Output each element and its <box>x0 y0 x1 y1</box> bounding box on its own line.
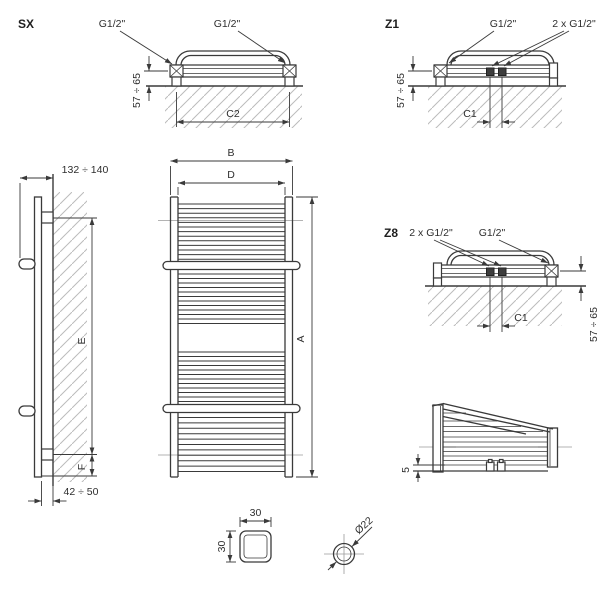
valve-right <box>545 265 558 277</box>
technical-drawing-page: SX G1/2" G1/2" <box>0 0 616 616</box>
dim-e-text: E <box>76 337 88 344</box>
dim-wall-distance: 57 ÷ 65 <box>395 56 432 108</box>
dim-diameter-text: Ø22 <box>353 515 376 537</box>
dim-a: A <box>295 197 318 477</box>
leader-left <box>120 31 172 64</box>
wall-foot-right <box>547 277 556 286</box>
dim-square-width: 30 <box>240 507 271 527</box>
drawing-svg: SX G1/2" G1/2" <box>0 0 616 616</box>
dim-wall-distance-text: 57 ÷ 65 <box>395 73 407 108</box>
view-front: B D A <box>158 147 318 477</box>
square-tube-inner <box>244 535 267 558</box>
valve-right <box>283 65 296 77</box>
wall-hatch <box>53 192 87 482</box>
dim-square-width-text: 30 <box>250 507 262 519</box>
dim-offset-5-text: 5 <box>400 467 412 473</box>
port-center-label: 2 x G1/2" <box>552 18 596 30</box>
bow-edge-1 <box>443 404 553 430</box>
detail-round-profile: Ø22 <box>324 515 375 574</box>
view-side: 132 ÷ 140 E F 42 ÷ 50 <box>19 164 108 506</box>
end-cap-left <box>434 263 442 278</box>
wall-foot-left <box>436 77 445 86</box>
hanger-bar <box>163 262 300 270</box>
detail-square-profile: 30 30 <box>216 507 271 562</box>
view-bottom-perspective: 5 <box>400 404 572 483</box>
collector-right <box>285 197 293 477</box>
valve-left <box>434 65 447 77</box>
leader-center-2 <box>440 240 501 266</box>
view-z8-top: Z8 2 x G1/2" G1/2" 57 ÷ 65 <box>384 226 600 342</box>
center-port-2 <box>499 68 507 76</box>
valve-left <box>170 65 183 77</box>
dim-d-text: D <box>227 169 235 181</box>
dim-f-text: F <box>76 464 88 470</box>
dim-wall-gap: 42 ÷ 50 <box>28 481 99 506</box>
port-left-label: G1/2" <box>99 18 126 30</box>
wall-foot-right <box>285 77 294 86</box>
hanger-bar <box>163 405 300 413</box>
dim-square-height-text: 30 <box>216 541 228 553</box>
hanger-bow-outer <box>176 51 290 65</box>
hanger-bow-inner <box>451 55 549 65</box>
dim-c2-text: C2 <box>226 108 240 120</box>
view-sx-label: SX <box>18 17 34 31</box>
wall-hatch <box>428 286 562 326</box>
dim-wall-gap-text: 42 ÷ 50 <box>64 486 99 498</box>
collector-right <box>548 428 558 467</box>
front-rungs <box>178 204 285 472</box>
view-sx-top: SX G1/2" G1/2" <box>18 17 303 128</box>
hanger-stub-top <box>19 259 35 269</box>
bracket-bottom <box>42 449 54 460</box>
bottom-rungs <box>443 413 548 465</box>
dim-a-text: A <box>295 335 307 342</box>
dim-wall-distance-text: 57 ÷ 65 <box>588 307 600 342</box>
port-side-label: G1/2" <box>490 18 517 30</box>
view-z8-label: Z8 <box>384 226 398 240</box>
panel-profile <box>35 197 42 477</box>
wall-foot-right <box>550 78 558 86</box>
dim-depth-total-text: 132 ÷ 140 <box>62 164 109 176</box>
center-port-1 <box>487 68 495 76</box>
dim-wall-distance-text: 57 ÷ 65 <box>131 73 143 108</box>
end-cap-right <box>550 63 558 78</box>
dim-c1-text: C1 <box>514 312 528 324</box>
collector-left <box>432 404 444 473</box>
dim-d: D <box>178 169 285 195</box>
wall-hatch <box>428 86 562 128</box>
dim-b-text: B <box>227 147 234 159</box>
leader-center-2 <box>504 31 569 66</box>
view-z1-label: Z1 <box>385 17 399 31</box>
dim-wall-distance: 57 ÷ 65 <box>560 256 600 342</box>
wall-foot-left <box>434 278 442 286</box>
front-hanger-bars <box>163 262 300 413</box>
port-center-label: 2 x G1/2" <box>409 227 453 239</box>
wall-foot-left <box>172 77 181 86</box>
collector-left <box>171 197 179 477</box>
leader-right <box>238 31 285 63</box>
view-z1-top: Z1 G1/2" 2 x G1/2" 57 ÷ 65 <box>385 17 596 128</box>
dim-square-height: 30 <box>216 531 236 562</box>
center-port-2 <box>499 268 507 276</box>
port-side-label: G1/2" <box>479 227 506 239</box>
port-right-label: G1/2" <box>214 18 241 30</box>
dim-c1-text: C1 <box>463 108 477 120</box>
leader-side <box>449 31 494 63</box>
hanger-stub-bottom <box>19 406 35 416</box>
bracket-top <box>42 212 54 223</box>
center-port-1 <box>487 268 495 276</box>
dim-wall-distance: 57 ÷ 65 <box>131 56 168 108</box>
hanger-bow-inner <box>181 55 285 65</box>
leader-center-1 <box>434 240 489 266</box>
